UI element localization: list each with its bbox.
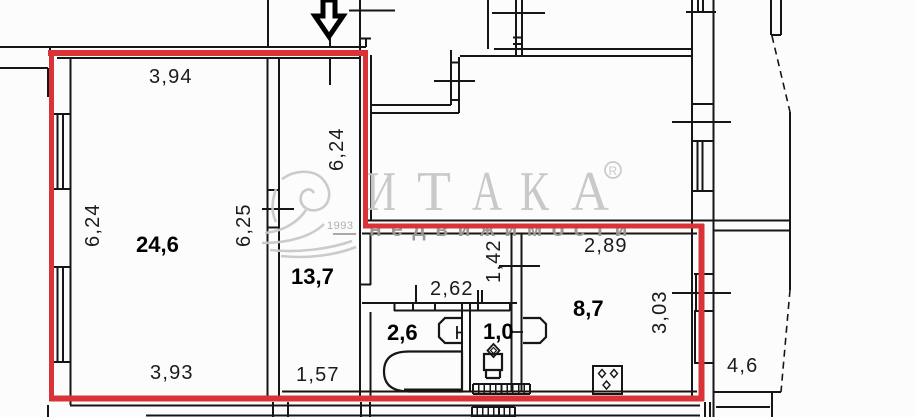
svg-text:Т: Т <box>417 161 451 223</box>
svg-text:1993: 1993 <box>327 220 353 232</box>
svg-text:3,93: 3,93 <box>150 362 194 384</box>
svg-text:13,7: 13,7 <box>291 264 334 289</box>
svg-text:3,03: 3,03 <box>649 290 671 334</box>
svg-text:6,24: 6,24 <box>326 127 348 171</box>
svg-text:1,57: 1,57 <box>296 364 340 386</box>
svg-text:6,25: 6,25 <box>233 203 255 247</box>
svg-text:6,24: 6,24 <box>82 203 104 247</box>
svg-text:1,42: 1,42 <box>483 239 505 283</box>
svg-text:R: R <box>609 164 618 178</box>
svg-text:1,0: 1,0 <box>483 319 514 344</box>
svg-text:А: А <box>571 161 610 223</box>
svg-text:2,62: 2,62 <box>430 278 474 300</box>
svg-text:И: И <box>366 161 396 223</box>
svg-text:2,6: 2,6 <box>387 320 418 345</box>
svg-text:А: А <box>472 161 502 223</box>
svg-text:8,7: 8,7 <box>573 296 604 321</box>
svg-text:2,89: 2,89 <box>584 235 628 257</box>
svg-text:К: К <box>520 161 549 223</box>
svg-text:4,6: 4,6 <box>727 355 758 377</box>
svg-text:24,6: 24,6 <box>136 232 179 257</box>
svg-text:3,94: 3,94 <box>149 66 193 88</box>
